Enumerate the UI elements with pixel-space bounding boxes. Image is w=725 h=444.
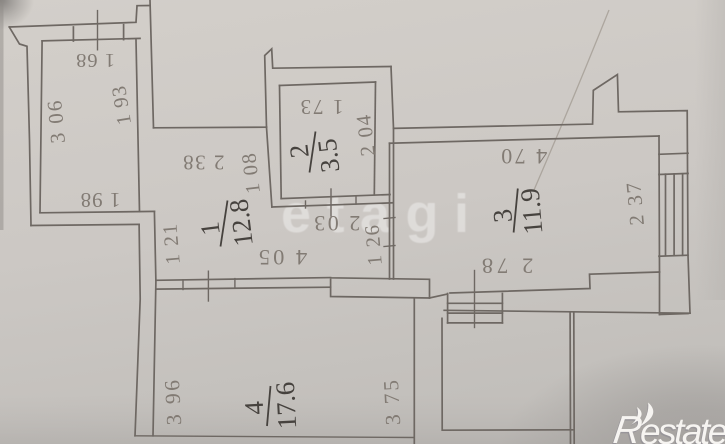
svg-text:12.8: 12.8 xyxy=(223,197,259,248)
svg-text:2 37: 2 37 xyxy=(621,180,649,227)
svg-text:1 98: 1 98 xyxy=(80,188,121,212)
svg-text:1 68: 1 68 xyxy=(75,49,115,71)
svg-text:3.5: 3.5 xyxy=(312,137,346,174)
svg-text:2 03: 2 03 xyxy=(312,211,361,236)
svg-text:3 75: 3 75 xyxy=(379,377,405,426)
svg-text:4 05: 4 05 xyxy=(256,245,307,270)
svg-text:1 73: 1 73 xyxy=(299,95,344,119)
svg-text:1 26: 1 26 xyxy=(361,223,387,267)
svg-text:4: 4 xyxy=(239,400,270,416)
svg-text:2 78: 2 78 xyxy=(478,254,533,279)
svg-text:17.6: 17.6 xyxy=(270,381,302,430)
svg-text:2 38: 2 38 xyxy=(182,151,225,175)
svg-text:4 70: 4 70 xyxy=(499,144,548,169)
svg-text:11.9: 11.9 xyxy=(515,187,549,236)
svg-text:1 21: 1 21 xyxy=(159,222,185,266)
svg-text:estate: estate xyxy=(640,411,725,444)
svg-text:3 06: 3 06 xyxy=(42,98,70,145)
svg-text:3: 3 xyxy=(487,208,518,224)
svg-text:3 96: 3 96 xyxy=(160,377,186,426)
